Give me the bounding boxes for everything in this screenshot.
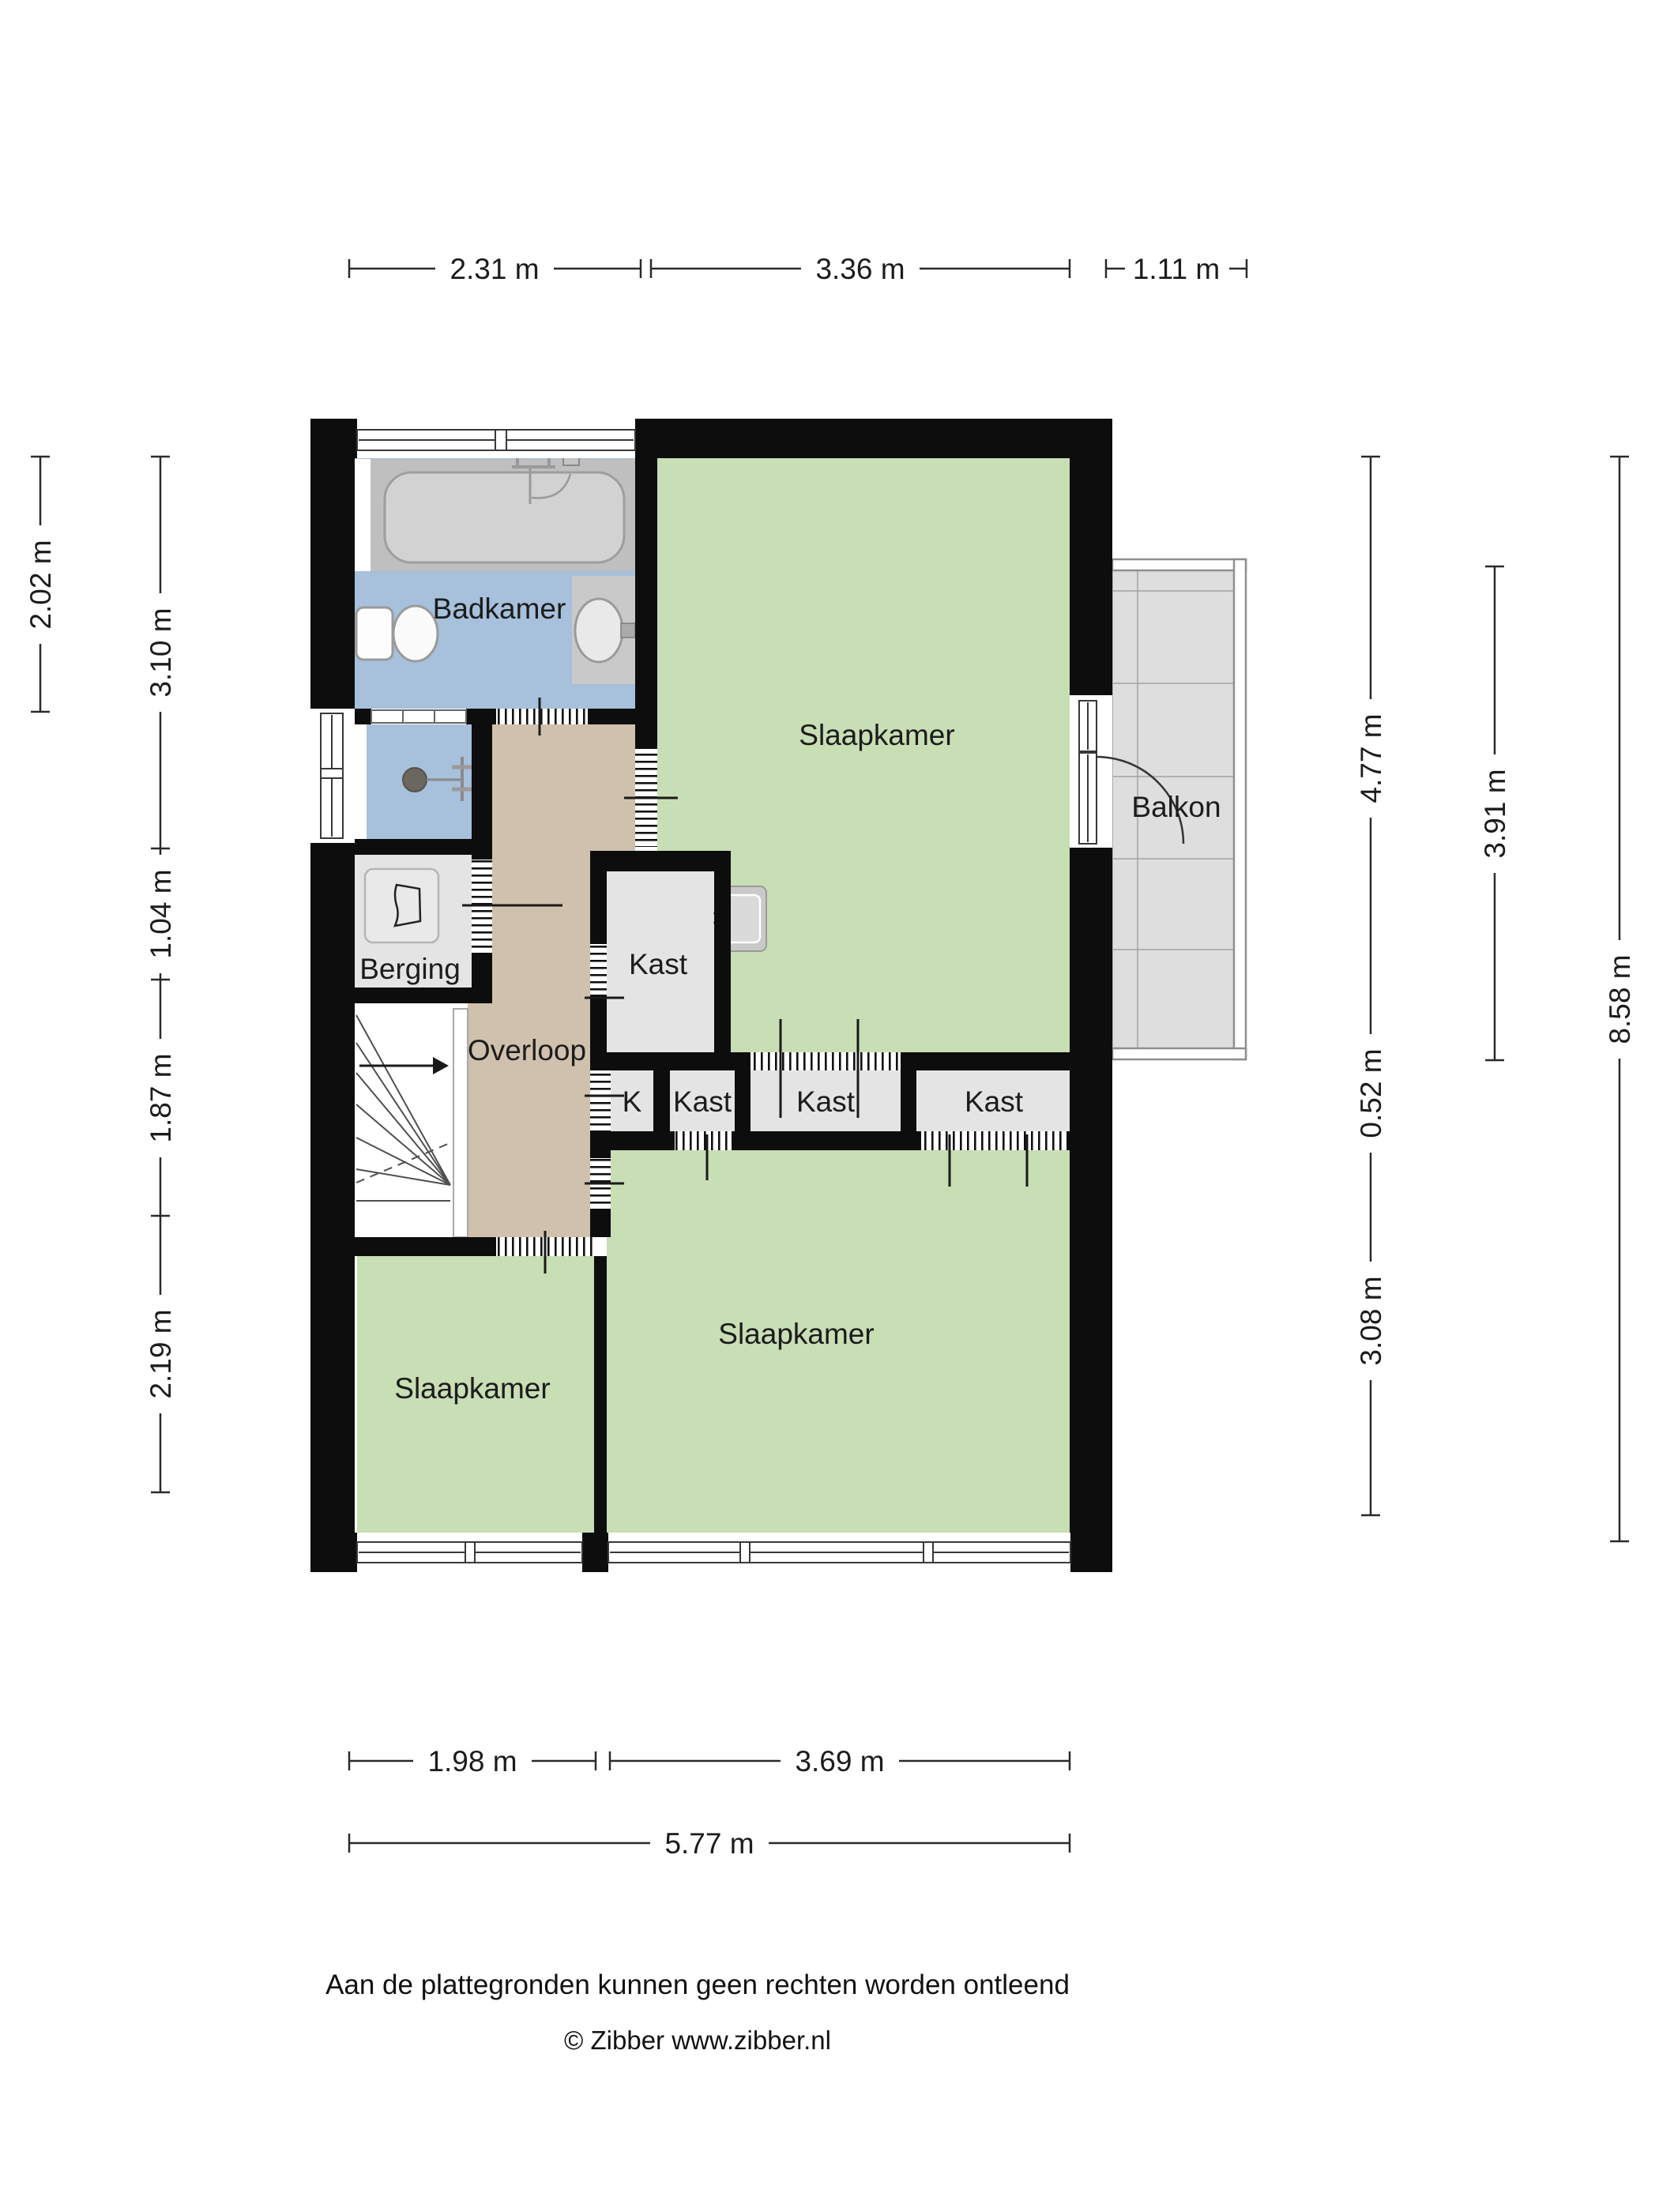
door-kast-small	[675, 1131, 732, 1150]
dim-right-total: 8.58 m	[1604, 954, 1636, 1044]
bathroom-partition	[371, 710, 466, 723]
dim-right-2: 0.52 m	[1355, 1048, 1387, 1138]
dim-right-balcony: 3.91 m	[1477, 566, 1512, 1060]
label-slaapkamer-bottom: Slaapkamer	[718, 1318, 874, 1350]
dim-right-balcony: 3.91 m	[1479, 769, 1511, 858]
footer: Aan de plattegronden kunnen geen rechten…	[325, 1969, 1070, 2055]
dim-bottom-2: 3.69 m	[795, 1745, 884, 1777]
window-badkamer	[357, 419, 635, 458]
bathtub-icon	[355, 456, 635, 571]
footer-disclaimer: Aan de plattegronden kunnen geen rechten…	[325, 1969, 1070, 2000]
label-kast-small: Kast	[673, 1085, 732, 1118]
dim-top: 2.31 m 3.36 m 1.11 m	[349, 251, 1247, 286]
dim-right-3: 3.08 m	[1355, 1276, 1387, 1365]
window-shower	[310, 709, 355, 843]
dim-left-1: 3.10 m	[145, 608, 177, 697]
dim-left-3: 1.87 m	[145, 1053, 177, 1142]
dim-right-inner: 4.77 m 0.52 m 3.08 m	[1353, 457, 1388, 1515]
dim-bottom-1: 1.98 m	[427, 1745, 517, 1777]
label-slaapkamer-left: Slaapkamer	[394, 1372, 550, 1405]
dim-top-3: 1.11 m	[1133, 253, 1220, 285]
dim-bottom-total: 5.77 m	[664, 1827, 754, 1860]
door-kast-middle	[750, 1052, 901, 1070]
stairwell-floor	[355, 1003, 468, 1237]
window-slaapkamer-bottom	[608, 1533, 1070, 1572]
door-kast-large	[590, 944, 607, 995]
dim-bottom: 1.98 m 3.69 m 5.77 m	[349, 1744, 1070, 1860]
dim-left-2: 1.04 m	[145, 869, 177, 958]
bathroom-sink-icon	[572, 576, 635, 684]
door-kast-right	[921, 1131, 1066, 1150]
dim-right-total: 8.58 m	[1602, 457, 1637, 1541]
label-kast-right: Kast	[965, 1085, 1024, 1118]
label-kast-k: K	[623, 1085, 642, 1118]
dim-left-outer: 2.02 m	[23, 457, 58, 712]
label-kast-large: Kast	[629, 948, 688, 980]
stairs-handrail	[453, 1009, 468, 1237]
label-kast-middle: Kast	[796, 1085, 856, 1118]
label-badkamer: Badkamer	[433, 592, 566, 625]
dim-top-2: 3.36 m	[815, 253, 905, 285]
window-slaapkamer-left	[357, 1533, 582, 1572]
dim-top-1: 2.31 m	[450, 253, 539, 285]
dim-right-1: 4.77 m	[1355, 713, 1387, 803]
water-heater-icon	[365, 869, 438, 942]
label-balkon: Balkon	[1131, 791, 1221, 823]
floorplan-page: Badkamer Slaapkamer Balkon Berging Overl…	[0, 0, 1659, 2212]
dim-left-inner: 3.10 m 1.04 m 1.87 m 2.19 m	[143, 457, 178, 1492]
label-slaapkamer-top: Slaapkamer	[799, 719, 954, 751]
door-badkamer	[496, 709, 588, 724]
dim-left-4: 2.19 m	[145, 1309, 177, 1398]
footer-copyright: © Zibber www.zibber.nl	[564, 2026, 831, 2055]
dim-left-outer: 2.02 m	[24, 540, 57, 629]
label-berging: Berging	[359, 953, 461, 985]
door-kast-k	[590, 1070, 611, 1131]
label-overloop: Overloop	[468, 1034, 586, 1066]
floorplan-canvas: Badkamer Slaapkamer Balkon Berging Overl…	[0, 0, 1659, 2212]
